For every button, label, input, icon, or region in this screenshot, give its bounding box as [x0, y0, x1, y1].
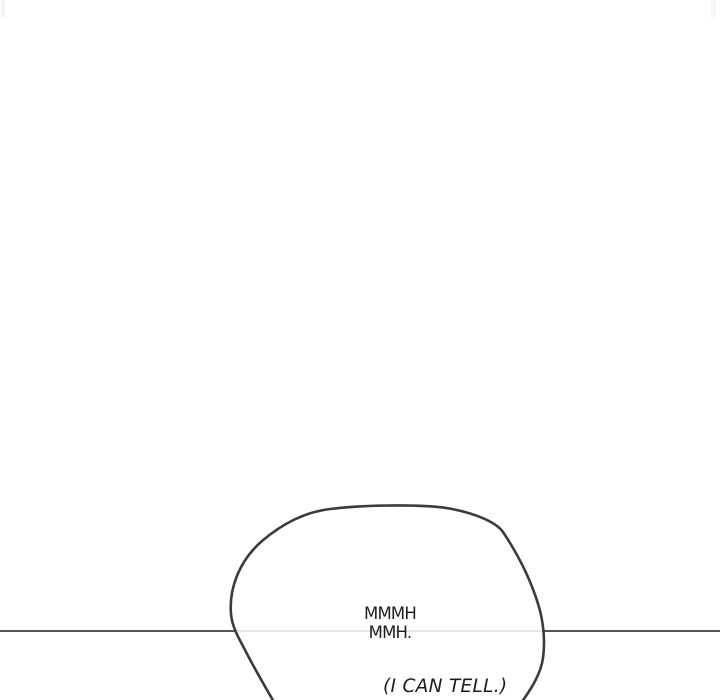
- speech-bubble-text: MMMH MMH.: [364, 604, 416, 642]
- comic-panel: MMMH MMH. (I CAN TELL.): [0, 0, 720, 700]
- speech-line-2: MMH.: [364, 623, 416, 642]
- speech-line-1: MMMH: [364, 604, 416, 623]
- speech-caption: (I CAN TELL.): [383, 677, 507, 697]
- speech-bubble: [231, 505, 544, 700]
- panel-artwork: [0, 0, 720, 700]
